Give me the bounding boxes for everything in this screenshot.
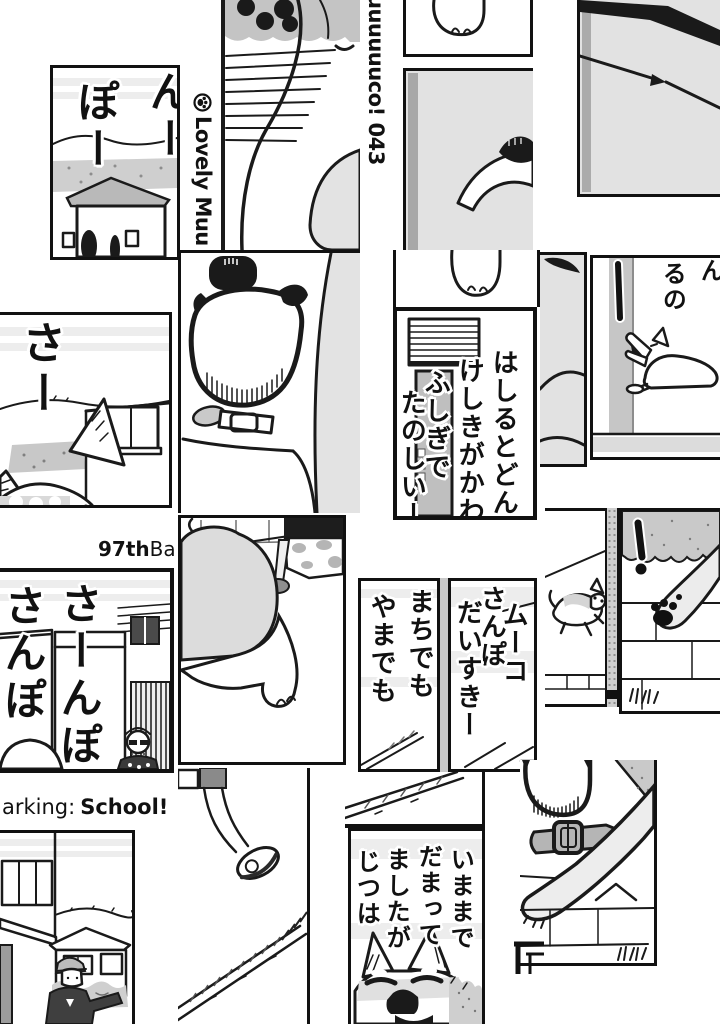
mouth-closeup-art	[181, 253, 360, 513]
panel-imamade: いままで だまって ましたが じつは	[348, 828, 485, 1024]
pole-divider	[440, 578, 448, 772]
panel-corner-art	[512, 936, 548, 976]
dialogue-imamade-col4: じつは	[353, 849, 378, 927]
dialogue-hashiru-col1: はしるとどん	[489, 349, 516, 517]
panel-muco-text: ムーコ さんぽ だいすきー	[448, 578, 537, 772]
panel-house-man	[0, 830, 135, 1024]
dialogue-yawn-col-left: るの	[659, 261, 684, 313]
series-logo: Lovely Muu	[191, 93, 215, 246]
paw-hang-art	[406, 0, 530, 54]
gray-sliver-art	[540, 255, 584, 464]
chapter-title-start: Ba	[150, 537, 176, 561]
walk-away-art	[181, 518, 343, 762]
fragment-panel-corner	[512, 936, 548, 976]
chapter-title-fragment-top: 97thBa	[98, 537, 176, 561]
dialogue-imamade-col2: だまって	[415, 844, 440, 948]
panel-machi-text: まちでも やまでも	[358, 578, 440, 772]
panel-curb-strip	[345, 772, 485, 828]
pole-base	[607, 690, 617, 699]
panel-house-pon: んー ぽー	[50, 65, 180, 260]
series-logo-continuation: uuuuuuco! 043	[364, 0, 388, 165]
panel-leash-run	[545, 508, 605, 707]
dialogue-imamade-col1: いままで	[447, 847, 472, 951]
dialogue-muco-col3: だいすきー	[453, 599, 480, 739]
panel-gray-sliver	[540, 252, 587, 467]
dialogue-machi-col2: やまでも	[367, 593, 394, 705]
sfx-sanpo-left: さんぽ	[0, 584, 44, 725]
series-logo-text: Lovely Muu	[191, 116, 215, 246]
dialogue-imamade-col3: ましたが	[383, 847, 408, 951]
collar-wall-art	[520, 760, 654, 963]
chapter-title-mid: arking:	[2, 795, 75, 819]
dialogue-hashiru-col2: けしきがかわ	[455, 357, 482, 520]
chapter-number: 97th	[98, 537, 150, 561]
panel-saa-house: さー	[0, 312, 172, 508]
house-man-art	[0, 833, 132, 1024]
panel-leg-walk	[178, 768, 310, 1024]
panel-gray-angular	[577, 0, 720, 197]
paw-tip-art	[396, 250, 537, 307]
curb-strip-art	[345, 772, 482, 824]
panel-sanpo-town: さーんぽ さんぽ	[0, 568, 174, 773]
pole-speckled	[605, 508, 619, 707]
panel-paw-hang	[403, 0, 533, 57]
panel-walk-away	[178, 515, 346, 765]
claw-gray-art	[406, 71, 533, 255]
panel-claw-gray	[403, 68, 533, 255]
sfx-pon-right: んー	[145, 70, 180, 164]
leash-run-art	[545, 511, 605, 704]
panel-paw-wall	[619, 508, 720, 714]
chapter-title-end: School!	[80, 795, 168, 819]
panel-mouth-closeup	[178, 250, 360, 513]
manga-collage-page: んー ぽー さー 97thBa	[0, 0, 720, 1024]
sfx-saa: さー	[16, 320, 62, 420]
dialogue-yawn-col-right: ん	[697, 258, 720, 284]
paw-wall-art	[622, 511, 720, 711]
panel-yawn-dog: ん るの	[590, 255, 720, 460]
sfx-sanpo-right: さーんぽ	[56, 582, 100, 770]
panel-paw-tip	[393, 250, 540, 307]
gray-angular-art	[580, 0, 720, 194]
sfx-pon-left: ぽー	[73, 80, 117, 174]
dialogue-hashiru-col4: たのしいー	[397, 389, 424, 520]
panel-hashiru-text: はしるとどん けしきがかわ ふしぎで たのしいー	[393, 307, 537, 520]
paw-circle-icon	[194, 93, 213, 112]
dialogue-machi-col1: まちでも	[405, 588, 432, 700]
leg-walk-art	[178, 768, 307, 1024]
yawn-dog-art	[593, 258, 720, 457]
chapter-title-fragment-bottom: arking:School!	[2, 795, 168, 819]
